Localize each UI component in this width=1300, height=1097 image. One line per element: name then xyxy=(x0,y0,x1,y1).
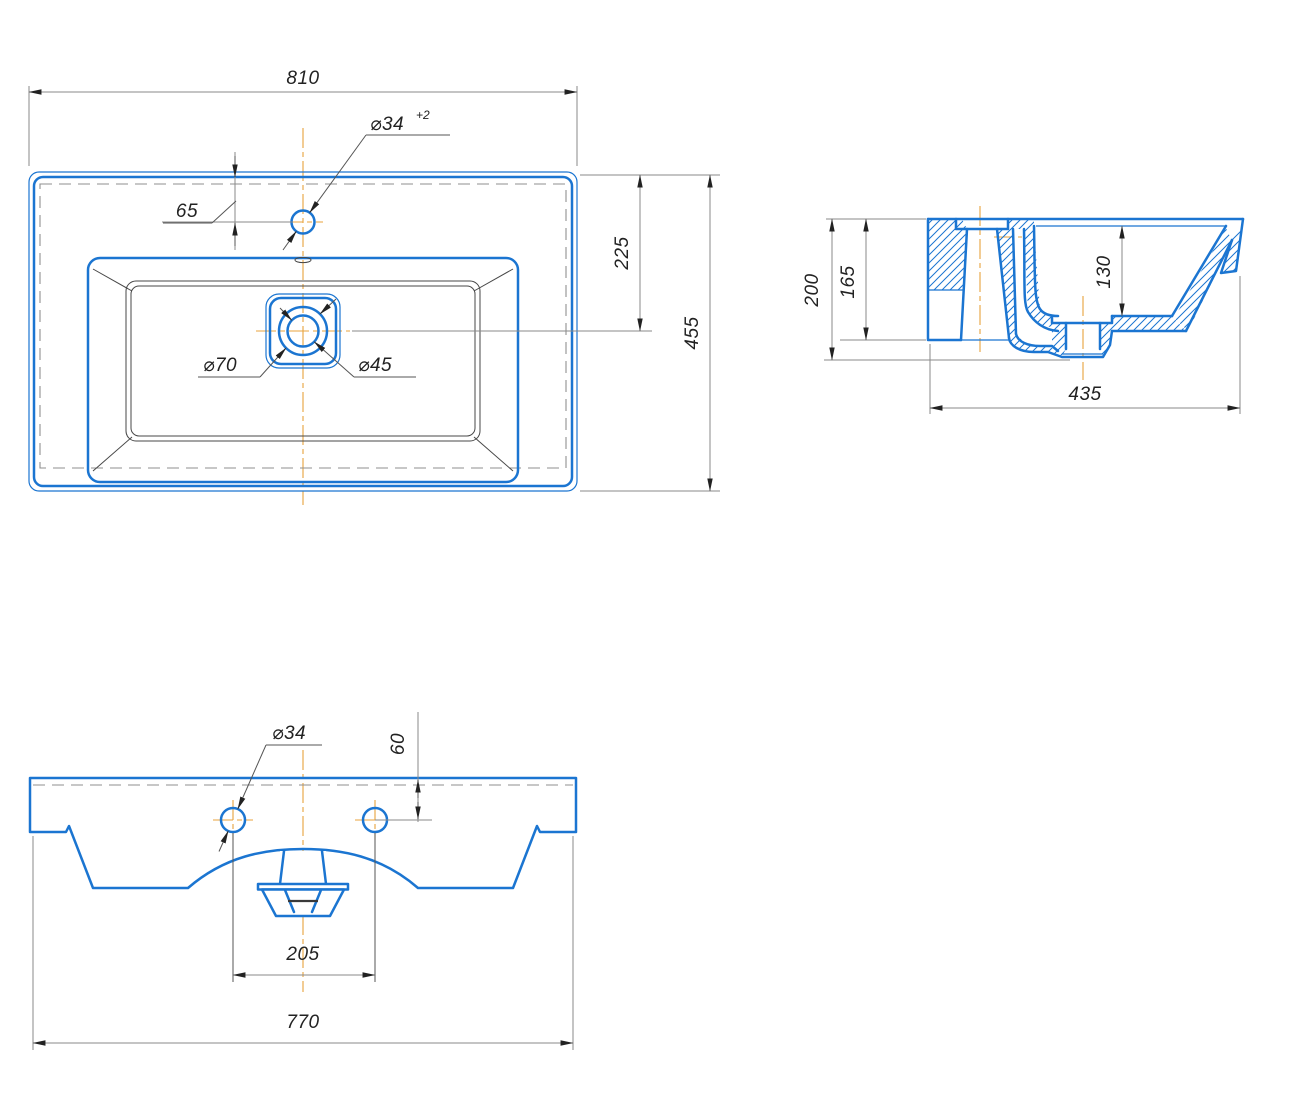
basin-corner-line xyxy=(474,437,513,471)
front-wall-hatch xyxy=(1174,228,1232,331)
dim-section-depth: 435 xyxy=(1068,384,1101,405)
top-view: 810 65 ⌀34 +2 ⌀70 ⌀45 225 455 xyxy=(29,68,720,505)
spout-neck-fill xyxy=(280,851,326,884)
side-section-view: 200 165 130 435 xyxy=(802,206,1243,414)
dim-faucet-hole-tolerance: +2 xyxy=(416,108,430,122)
dim-drain-center-offset: 225 xyxy=(612,236,633,270)
dim-top-overall-depth: 455 xyxy=(682,316,703,349)
technical-drawing-page: 810 65 ⌀34 +2 ⌀70 ⌀45 225 455 xyxy=(0,0,1300,1097)
spout-body xyxy=(262,890,344,917)
dim-mount-hole-offset: 60 xyxy=(388,733,409,755)
dim-top-overall-width: 810 xyxy=(286,68,319,89)
basin-corner-line xyxy=(474,269,513,291)
dim-drain-flange-dia: ⌀70 xyxy=(203,355,237,376)
dim-rear-wall-height: 165 xyxy=(838,265,859,298)
dim-mount-hole-spacing: 205 xyxy=(285,944,319,965)
washbasin-drawing: 810 65 ⌀34 +2 ⌀70 ⌀45 225 455 xyxy=(0,0,1300,1097)
basin-corner-line xyxy=(93,437,132,471)
dim-overall-height: 200 xyxy=(802,273,823,307)
basin-back-wall xyxy=(1034,226,1058,316)
dim-bowl-depth: 130 xyxy=(1094,255,1115,288)
dim-faucet-offset: 65 xyxy=(176,201,198,222)
dim-drain-hole-dia: ⌀45 xyxy=(358,355,392,376)
drain-seat xyxy=(1052,316,1112,323)
dim-front-overall-width: 770 xyxy=(286,1012,319,1033)
dim-mount-hole-dia: ⌀34 xyxy=(272,723,306,744)
deck-hatch xyxy=(1008,219,1034,229)
front-view: ⌀34 60 205 770 xyxy=(30,712,576,1050)
basin-corner-line xyxy=(93,269,132,291)
dim-faucet-hole-dia: ⌀34 xyxy=(370,114,404,135)
